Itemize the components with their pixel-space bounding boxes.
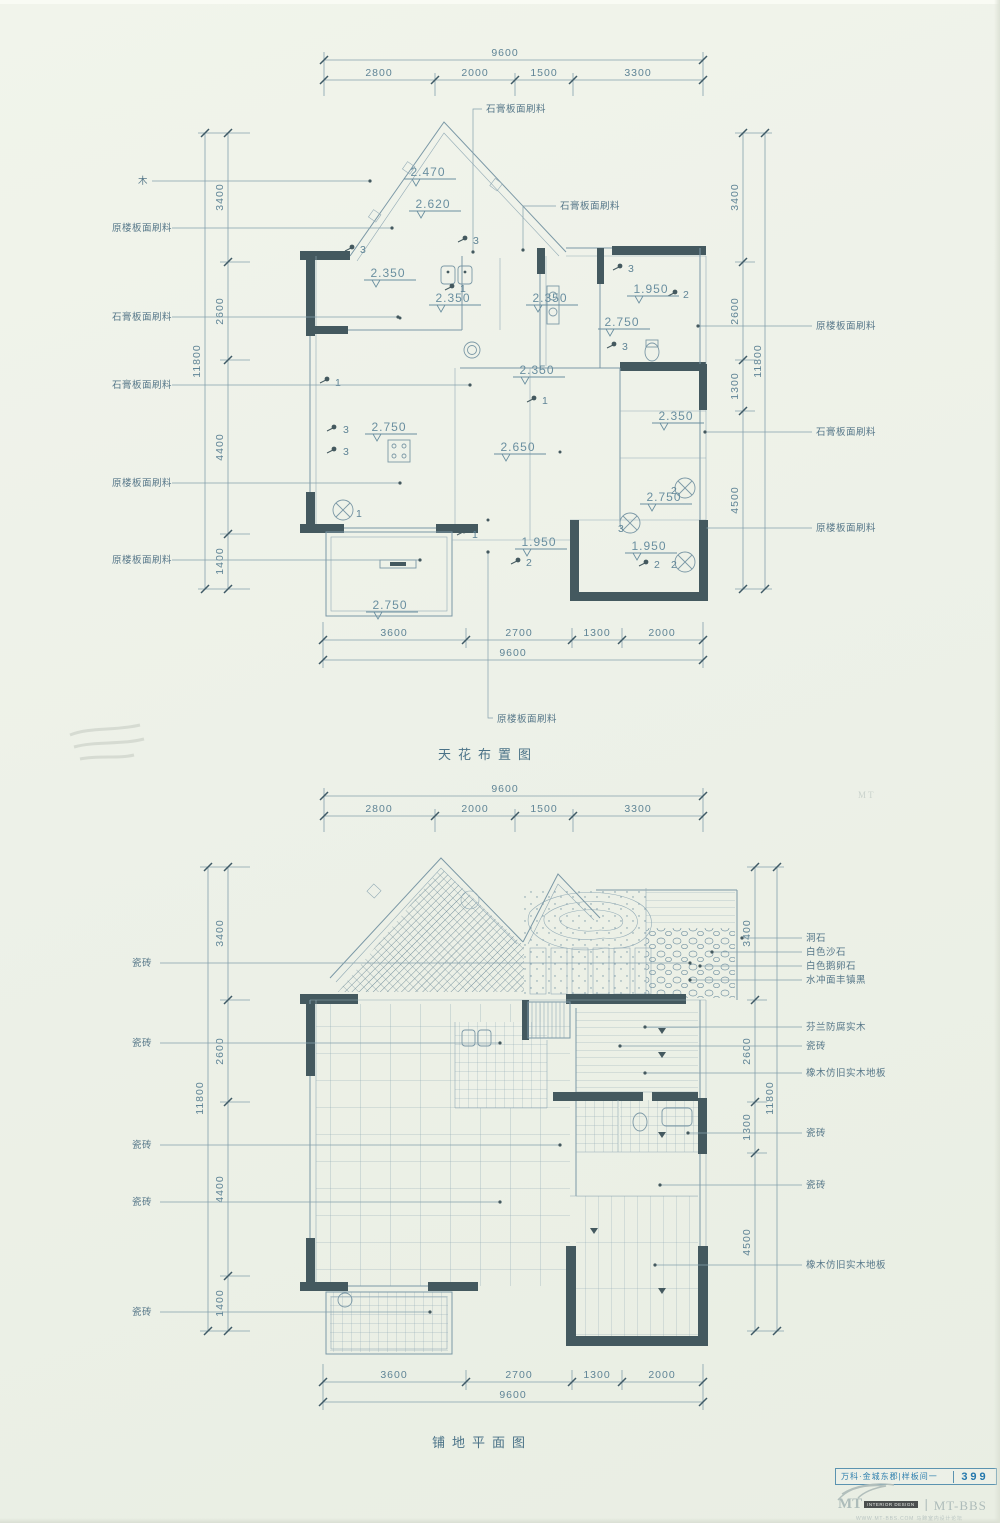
fixture-tag: 3 xyxy=(360,244,366,256)
fixture-tag: 1 xyxy=(542,395,548,407)
dim-total-top: 9600 xyxy=(491,783,518,795)
material-label: 石膏板面刷料 xyxy=(112,379,172,391)
dim-seg: 1300 xyxy=(583,627,610,639)
dim-seg: 4400 xyxy=(214,1175,226,1202)
fixture-tag: 3 xyxy=(628,263,634,275)
top-dimension-chain: 9600 2800 2000 1500 3300 xyxy=(320,783,707,832)
fixture-tag: 3 xyxy=(618,523,624,535)
material-label: 木 xyxy=(138,175,148,187)
level-value: 2.750 xyxy=(371,420,406,434)
dim-seg: 1300 xyxy=(729,372,741,399)
dim-total-left: 11800 xyxy=(191,344,203,377)
dim-seg: 2700 xyxy=(505,1369,532,1381)
dim-seg: 1400 xyxy=(214,1289,226,1316)
dim-seg: 3400 xyxy=(214,919,226,946)
level-value: 2.350 xyxy=(532,291,567,305)
dim-seg: 4400 xyxy=(214,433,226,460)
ceiling-plan-title: 天花布置图 xyxy=(378,744,598,763)
level-value: 2.750 xyxy=(604,315,639,329)
material-label: 橡木仿旧实木地板 xyxy=(806,1259,886,1271)
fixture-tag: 2 xyxy=(526,557,532,569)
paving-plan-title: 铺地平面图 xyxy=(372,1432,592,1451)
material-label: 白色鹅卵石 xyxy=(806,960,856,972)
fixture-tag: 3 xyxy=(343,446,349,458)
material-label: 瓷砖 xyxy=(806,1179,826,1191)
fixture-tag: 3 xyxy=(622,341,628,353)
level-value: 2.350 xyxy=(658,409,693,423)
scan-edge-right xyxy=(994,0,1000,1523)
scan-edge-bottom xyxy=(0,1518,1000,1523)
material-label: 水冲面丰镇黑 xyxy=(806,974,866,986)
material-label: 瓷砖 xyxy=(806,1040,826,1052)
fixture-tag: 2 xyxy=(671,559,677,571)
paving-finishes xyxy=(316,868,735,1352)
scanned-drawing-page: 9600 2800 2000 1500 3300 11800 3400 2600… xyxy=(0,0,1000,1523)
ceiling-plan-figure: 9600 2800 2000 1500 3300 11800 3400 2600… xyxy=(90,40,910,780)
dim-seg: 2600 xyxy=(214,297,226,324)
dim-seg: 2800 xyxy=(365,803,392,815)
left-dimension-chain: 11800 3400 2600 4400 1400 xyxy=(194,863,250,1335)
dim-seg: 1300 xyxy=(583,1369,610,1381)
material-label: 原楼板面刷料 xyxy=(112,477,172,489)
fixture-tag: 1 xyxy=(472,529,478,541)
material-label: 白色沙石 xyxy=(806,946,846,958)
level-value: 1.950 xyxy=(631,539,666,553)
bottom-dimension-chain: 3600 2700 1300 2000 9600 xyxy=(319,622,707,668)
dim-seg: 2600 xyxy=(729,297,741,324)
material-label: 原楼板面刷料 xyxy=(816,522,876,534)
watermark-brand: 丨MT-BBS xyxy=(920,1495,987,1514)
material-label: 石膏板面刷料 xyxy=(112,311,172,323)
material-label: 橡木仿旧实木地板 xyxy=(806,1067,886,1079)
level-value: 2.750 xyxy=(372,598,407,612)
right-dimension-chain: 3400 2600 1300 4500 11800 xyxy=(729,129,772,593)
material-label: 原楼板面刷料 xyxy=(497,713,557,725)
dim-seg: 3600 xyxy=(380,627,407,639)
material-label: 瓷砖 xyxy=(132,1196,152,1208)
level-value: 2.350 xyxy=(435,291,470,305)
fixture-tag: 2 xyxy=(683,289,689,301)
level-value: 1.950 xyxy=(521,535,556,549)
dim-seg: 2000 xyxy=(461,803,488,815)
scan-smudge xyxy=(60,715,150,775)
material-label: 洞石 xyxy=(806,933,826,944)
material-label: 瓷砖 xyxy=(806,1127,826,1139)
ceiling-material-labels: 木 原楼板面刷料 石膏板面刷料 石膏板面刷料 原楼板面刷料 原楼板面刷料 原楼板… xyxy=(112,103,876,725)
fixture-tag: 1 xyxy=(335,377,341,389)
dim-seg: 2600 xyxy=(741,1037,753,1064)
material-label: 瓷砖 xyxy=(132,1037,152,1049)
level-value: 1.950 xyxy=(633,282,668,296)
level-value: 2.620 xyxy=(415,197,450,211)
mt-bbs-watermark: MT INTERIOR DESIGN 丨MT-BBS WWW.MT-BBS.CO… xyxy=(838,1486,1000,1522)
material-label: 原楼板面刷料 xyxy=(112,222,172,234)
dim-total-right: 11800 xyxy=(764,1081,776,1114)
dim-seg: 3300 xyxy=(624,803,651,815)
material-label: 石膏板面刷料 xyxy=(816,426,876,438)
horse-logo-icon xyxy=(834,1480,904,1506)
dim-seg: 2000 xyxy=(461,67,488,79)
level-value: 2.350 xyxy=(519,363,554,377)
material-label: 原楼板面刷料 xyxy=(112,554,172,566)
right-dimension-chain: 3400 2600 1300 4500 11800 xyxy=(741,863,784,1335)
dim-total-top: 9600 xyxy=(491,47,518,59)
dim-seg: 3400 xyxy=(214,183,226,210)
dim-seg: 3300 xyxy=(624,67,651,79)
dim-seg: 3400 xyxy=(741,919,753,946)
top-dimension-chain: 9600 2800 2000 1500 3300 xyxy=(320,47,707,96)
material-label: 瓷砖 xyxy=(132,1139,152,1151)
fixture-tag: 3 xyxy=(343,424,349,436)
page-number: 399 xyxy=(953,1471,996,1483)
scan-edge-top xyxy=(0,0,1000,4)
material-label: 瓷砖 xyxy=(132,957,152,969)
level-value: 2.350 xyxy=(370,266,405,280)
dim-seg: 1400 xyxy=(214,547,226,574)
dim-seg: 2000 xyxy=(648,627,675,639)
dim-seg: 2700 xyxy=(505,627,532,639)
dim-seg: 1500 xyxy=(530,67,557,79)
dim-total-bottom: 9600 xyxy=(499,647,526,659)
bottom-dimension-chain: 3600 2700 1300 2000 9600 xyxy=(319,1364,707,1410)
fixture-tag: 1 xyxy=(356,508,362,520)
dim-total-right: 11800 xyxy=(752,344,764,377)
faint-watermark: MT xyxy=(858,790,876,800)
dim-seg: 4500 xyxy=(741,1228,753,1255)
material-label: 瓷砖 xyxy=(132,1306,152,1318)
fixture-tag: 2 xyxy=(654,559,660,571)
dim-seg: 2800 xyxy=(365,67,392,79)
level-value: 2.650 xyxy=(500,440,535,454)
left-dimension-chain: 11800 3400 2600 4400 1400 xyxy=(191,129,250,593)
dim-total-left: 11800 xyxy=(194,1081,206,1114)
dim-seg: 1500 xyxy=(530,803,557,815)
fixture-tag: 3 xyxy=(473,235,479,247)
ceiling-level-markers: 2.470 2.620 2.350 2.350 2.350 1.950 2.75… xyxy=(364,165,704,619)
material-label: 原楼板面刷料 xyxy=(816,320,876,332)
material-label: 石膏板面刷料 xyxy=(486,103,546,115)
dim-seg: 3600 xyxy=(380,1369,407,1381)
material-label: 芬兰防腐实木 xyxy=(806,1021,866,1033)
dim-seg: 4500 xyxy=(729,486,741,513)
paving-plan-figure: 9600 2800 2000 1500 3300 11800 3400 2600… xyxy=(90,780,910,1460)
dim-seg: 2000 xyxy=(648,1369,675,1381)
dim-seg: 3400 xyxy=(729,183,741,210)
level-value: 2.750 xyxy=(646,490,681,504)
level-value: 2.470 xyxy=(410,165,445,179)
dim-total-bottom: 9600 xyxy=(499,1389,526,1401)
dim-seg: 1300 xyxy=(741,1113,753,1140)
material-label: 石膏板面刷料 xyxy=(560,200,620,212)
dim-seg: 2600 xyxy=(214,1037,226,1064)
